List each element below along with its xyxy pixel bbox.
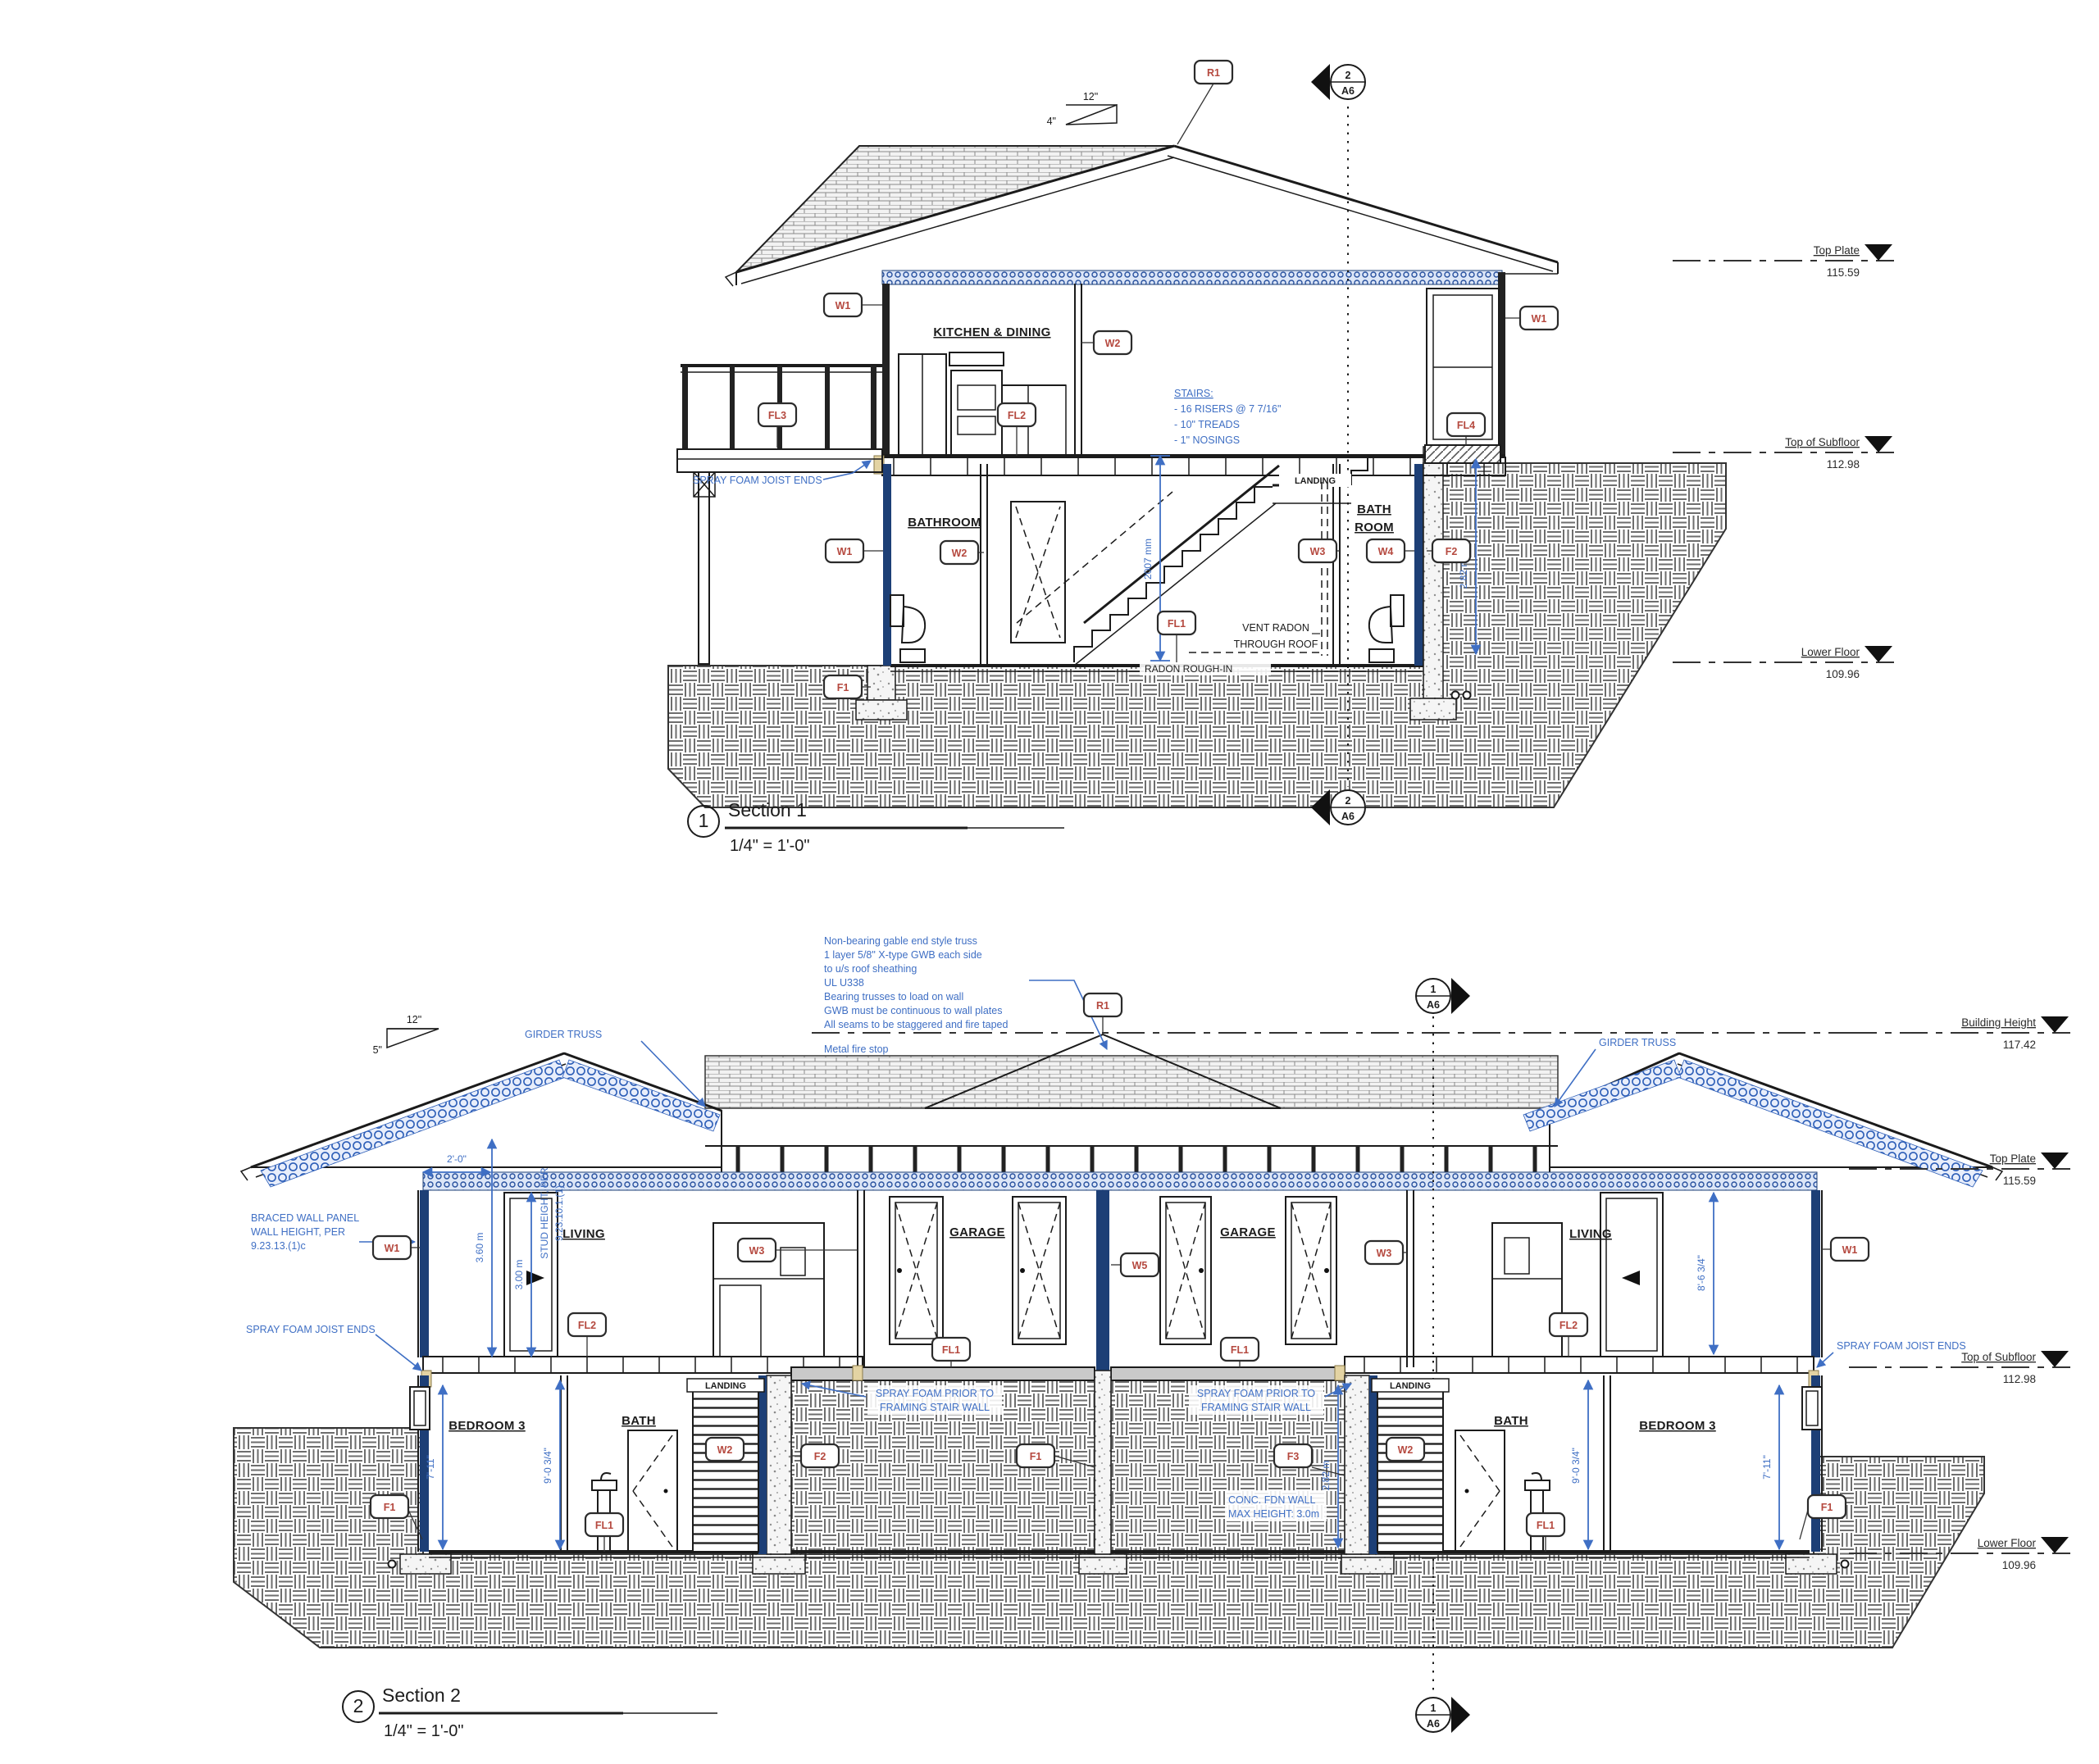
- svg-text:WALL HEIGHT, PER: WALL HEIGHT, PER: [251, 1226, 345, 1238]
- note-spray-foam-s1: SPRAY FOAM JOIST ENDS: [693, 461, 871, 486]
- section-marker-s1-top: 2 A6: [1311, 64, 1365, 100]
- tag-w3-s1: W3: [1299, 539, 1340, 562]
- tag-w3-left-s2: W3: [738, 1239, 858, 1262]
- tag-w2-right-s2: W2: [1386, 1438, 1424, 1461]
- svg-text:109.96: 109.96: [2002, 1559, 2036, 1571]
- room-label-landing-s1: LANDING: [1295, 476, 1336, 486]
- room-label-bathroom-s1: BATHROOM: [908, 516, 981, 530]
- svg-text:CONC. FDN WALL: CONC. FDN WALL: [1228, 1494, 1316, 1506]
- room-label-bedroom3-right: BEDROOM 3: [1639, 1419, 1716, 1433]
- svg-text:8'-6 3/4": 8'-6 3/4": [1696, 1255, 1707, 1291]
- note-spray-foam-right-s2: SPRAY FOAM JOIST ENDS: [1817, 1340, 1966, 1367]
- svg-text:W2: W2: [1398, 1444, 1414, 1456]
- tag-w5-s2: W5: [1111, 1253, 1159, 1276]
- svg-text:W5: W5: [1132, 1260, 1148, 1271]
- svg-text:Lower Floor: Lower Floor: [1978, 1537, 2037, 1549]
- svg-text:4": 4": [1047, 116, 1056, 127]
- svg-text:F1: F1: [1821, 1502, 1833, 1513]
- svg-text:FRAMING STAIR WALL: FRAMING STAIR WALL: [880, 1402, 990, 1413]
- note-gable-truss-s2: Non-bearing gable end style truss 1 laye…: [824, 935, 1107, 1055]
- svg-text:2.82 m: 2.82 m: [1458, 559, 1469, 589]
- level-building-height-s2: Building Height 117.42: [1849, 1016, 2070, 1051]
- svg-text:A6: A6: [1427, 999, 1440, 1011]
- toilet-left-s1: [890, 595, 925, 662]
- svg-text:STUD HEIGHT, PER: STUD HEIGHT, PER: [539, 1167, 550, 1259]
- svg-text:2: 2: [1345, 70, 1351, 81]
- tag-w1-upper-right-s1: W1: [1505, 307, 1558, 330]
- svg-text:FL2: FL2: [578, 1320, 596, 1331]
- svg-text:SPRAY FOAM PRIOR TO: SPRAY FOAM PRIOR TO: [1197, 1388, 1316, 1399]
- dim-overhang-s2: 2'-0": [423, 1153, 490, 1172]
- svg-text:FL1: FL1: [942, 1344, 960, 1356]
- svg-text:W3: W3: [1310, 546, 1326, 557]
- tag-fl4-s1: FL4: [1447, 413, 1485, 445]
- level-top-subfloor-s2: Top of Subfloor 112.98: [1849, 1351, 2070, 1385]
- stairs-right-s2: LANDING: [1372, 1379, 1449, 1552]
- room-label-bath-left: BATH: [622, 1414, 656, 1428]
- tag-fl3-s1: FL3: [758, 403, 796, 448]
- note-vent-radon-2: THROUGH ROOF: [1234, 639, 1318, 650]
- level-lower-floor-s1: Lower Floor 109.96: [1673, 646, 1894, 680]
- svg-text:7'-11": 7'-11": [425, 1455, 436, 1480]
- svg-text:9'-0 3/4": 9'-0 3/4": [542, 1448, 553, 1484]
- svg-text:to u/s roof sheathing: to u/s roof sheathing: [824, 963, 917, 975]
- svg-text:12": 12": [1083, 91, 1098, 102]
- stairs-left-s2: LANDING: [687, 1379, 764, 1552]
- garage-door-right-1: [1160, 1197, 1211, 1344]
- svg-text:BRACED WALL PANEL: BRACED WALL PANEL: [251, 1212, 359, 1224]
- garage-door-left-1: [890, 1197, 943, 1344]
- svg-text:FL2: FL2: [1008, 410, 1026, 421]
- svg-text:- 16 RISERS @ 7 7/16": - 16 RISERS @ 7 7/16": [1174, 403, 1281, 415]
- svg-text:A6: A6: [1341, 811, 1355, 822]
- svg-text:Section 1: Section 1: [728, 799, 807, 821]
- tag-w1-upper-left-s1: W1: [824, 293, 882, 316]
- svg-text:FL1: FL1: [595, 1520, 613, 1531]
- svg-text:112.98: 112.98: [2003, 1373, 2036, 1385]
- svg-text:9.23.10.1.(1): 9.23.10.1.(1): [553, 1185, 565, 1241]
- svg-text:9'-0 3/4": 9'-0 3/4": [1570, 1448, 1582, 1484]
- tag-fl2-s1: FL2: [998, 403, 1036, 456]
- note-radon-roughin: RADON ROUGH-IN: [1145, 663, 1232, 675]
- svg-text:SPRAY FOAM PRIOR TO: SPRAY FOAM PRIOR TO: [876, 1388, 995, 1399]
- svg-text:All seams to be staggered and: All seams to be staggered and fire taped: [824, 1019, 1008, 1030]
- tag-f2-s1: F2: [1427, 539, 1470, 562]
- svg-text:GWB must be continuous to wall: GWB must be continuous to wall plates: [824, 1005, 1002, 1016]
- svg-text:1: 1: [1431, 1703, 1437, 1714]
- svg-text:FL4: FL4: [1457, 420, 1475, 431]
- svg-text:F2: F2: [1446, 546, 1458, 557]
- svg-text:5": 5": [373, 1044, 382, 1056]
- svg-text:FL1: FL1: [1168, 618, 1186, 630]
- room-label-bath-right: BATH: [1494, 1414, 1528, 1428]
- tag-w3-right-s2: W3: [1365, 1241, 1407, 1264]
- svg-text:1/4" = 1'-0": 1/4" = 1'-0": [730, 837, 810, 855]
- svg-text:SPRAY FOAM JOIST ENDS: SPRAY FOAM JOIST ENDS: [693, 475, 822, 486]
- svg-text:2.82 m: 2.82 m: [1320, 1461, 1332, 1491]
- tag-fl1-garage-left: FL1: [932, 1338, 970, 1367]
- section-marker-s2-bottom: 1 A6: [1416, 1697, 1470, 1733]
- svg-text:F3: F3: [1287, 1451, 1300, 1462]
- svg-text:Building Height: Building Height: [1961, 1016, 2036, 1029]
- tag-w4-s1: W4: [1367, 539, 1414, 562]
- note-stairs-s1: STAIRS: - 16 RISERS @ 7 7/16" - 10" TREA…: [1174, 388, 1281, 446]
- tag-fl1-s1: FL1: [1158, 611, 1195, 662]
- ceiling-insulation-s2: [423, 1172, 1817, 1190]
- svg-text:W2: W2: [717, 1444, 733, 1456]
- svg-text:FL1: FL1: [1231, 1344, 1249, 1356]
- svg-text:3.00 m: 3.00 m: [513, 1260, 525, 1290]
- room-label-bathroom2-line1: BATH: [1357, 502, 1391, 516]
- svg-text:A6: A6: [1427, 1718, 1440, 1730]
- svg-text:3.60 m: 3.60 m: [474, 1233, 485, 1263]
- tag-r1-s2: R1: [1084, 993, 1122, 1034]
- main-walls-s2: [418, 1190, 1822, 1371]
- svg-text:W3: W3: [749, 1245, 765, 1257]
- dim-903-right-s2: 9'-0 3/4": [1570, 1380, 1588, 1549]
- svg-text:115.59: 115.59: [1827, 266, 1860, 279]
- note-metal-fire-stop: Metal fire stop: [824, 1043, 889, 1055]
- room-label-landing-left-s2: LANDING: [705, 1381, 746, 1391]
- svg-text:F1: F1: [1030, 1451, 1042, 1462]
- svg-text:F1: F1: [837, 682, 849, 693]
- svg-text:W1: W1: [1842, 1244, 1858, 1256]
- tag-fl1-bath-right: FL1: [1527, 1513, 1564, 1552]
- tag-w1-right-s2: W1: [1822, 1238, 1869, 1261]
- garage-door-right-2: [1286, 1197, 1336, 1344]
- tag-fl2-left-s2: FL2: [568, 1313, 606, 1357]
- kitchen-right-s2: [1492, 1223, 1562, 1357]
- garage-door-left-2: [1013, 1197, 1066, 1344]
- svg-text:Non-bearing gable end style tr: Non-bearing gable end style truss: [824, 935, 977, 947]
- room-label-living-left: LIVING: [562, 1227, 605, 1241]
- svg-text:- 1" NOSINGS: - 1" NOSINGS: [1174, 434, 1240, 446]
- room-label-garage-right: GARAGE: [1220, 1225, 1276, 1239]
- room-label-garage-left: GARAGE: [949, 1225, 1005, 1239]
- tag-fl2-right-s2: FL2: [1550, 1313, 1587, 1357]
- svg-text:A6: A6: [1341, 85, 1355, 97]
- svg-text:F2: F2: [814, 1451, 826, 1462]
- note-conc-fdn-s2: CONC. FDN WALL MAX HEIGHT: 3.0m: [1225, 1490, 1327, 1521]
- tag-w1-left-s2: W1: [373, 1236, 420, 1259]
- svg-text:SPRAY FOAM JOIST ENDS: SPRAY FOAM JOIST ENDS: [1837, 1340, 1966, 1352]
- svg-text:SPRAY FOAM JOIST ENDS: SPRAY FOAM JOIST ENDS: [246, 1324, 376, 1335]
- svg-text:W3: W3: [1377, 1248, 1392, 1259]
- toilet-right-s1: [1369, 595, 1404, 662]
- section-1-drawing: 12" 4" 2 A6 2 A6: [668, 61, 1894, 855]
- bath-door-right-s2: [1455, 1430, 1505, 1552]
- svg-text:2'-0": 2'-0": [447, 1153, 467, 1165]
- level-top-plate-s1: Top Plate 115.59: [1673, 244, 1894, 279]
- svg-text:1: 1: [1431, 984, 1437, 995]
- svg-text:FL1: FL1: [1537, 1520, 1555, 1531]
- subfloor-band-s1: [874, 456, 1505, 475]
- section-marker-s2-top: 1 A6: [1416, 978, 1470, 1014]
- room-label-kitchen: KITCHEN & DINING: [933, 325, 1050, 339]
- slope-marker-s1: 12" 4": [1047, 91, 1117, 127]
- svg-text:1/4" = 1'-0": 1/4" = 1'-0": [384, 1722, 464, 1740]
- ceiling-insulation-s1: [882, 271, 1502, 284]
- svg-text:- 10" TREADS: - 10" TREADS: [1174, 419, 1240, 430]
- svg-text:R1: R1: [1096, 1000, 1109, 1012]
- room-label-bedroom3-left: BEDROOM 3: [448, 1419, 526, 1433]
- svg-text:Top Plate: Top Plate: [1814, 244, 1860, 257]
- svg-text:112.98: 112.98: [1827, 458, 1860, 471]
- section-2-title: 2 Section 2 1/4" = 1'-0": [343, 1684, 717, 1740]
- room-label-living-right: LIVING: [1569, 1227, 1612, 1241]
- roof-s2: [241, 1034, 2002, 1187]
- roof-s1: [726, 146, 1558, 286]
- svg-text:115.59: 115.59: [2003, 1175, 2036, 1187]
- svg-text:FL3: FL3: [768, 410, 786, 421]
- svg-text:9.23.13.(1)c: 9.23.13.(1)c: [251, 1240, 306, 1252]
- svg-text:W1: W1: [837, 546, 853, 557]
- svg-text:W1: W1: [1532, 313, 1547, 325]
- radon-vent-s1: VENT RADON THROUGH ROOF RADON ROUGH-IN: [1140, 482, 1327, 675]
- tag-fl1-bath-left: FL1: [585, 1513, 623, 1552]
- svg-text:1 layer 5/8" X-type GWB each s: 1 layer 5/8" X-type GWB each side: [824, 949, 982, 961]
- svg-text:W2: W2: [1105, 338, 1121, 349]
- svg-text:2: 2: [353, 1695, 364, 1716]
- svg-text:2: 2: [1345, 795, 1351, 807]
- svg-text:Top of Subfloor: Top of Subfloor: [1961, 1351, 2036, 1363]
- svg-text:Top of Subfloor: Top of Subfloor: [1785, 436, 1860, 448]
- drawing-sheet: 12" 4" 2 A6 2 A6: [0, 0, 2099, 1764]
- svg-text:UL U338: UL U338: [824, 977, 864, 989]
- svg-text:FRAMING STAIR WALL: FRAMING STAIR WALL: [1201, 1402, 1311, 1413]
- bath-door-left-s2: [628, 1430, 677, 1552]
- room-label-bathroom2-line2: ROOM: [1355, 521, 1394, 534]
- svg-text:Lower Floor: Lower Floor: [1801, 646, 1860, 658]
- svg-text:W4: W4: [1378, 546, 1394, 557]
- tag-w2-left-s2: W2: [706, 1438, 744, 1461]
- svg-text:117.42: 117.42: [2003, 1039, 2036, 1051]
- svg-text:Bearing trusses to load on wal: Bearing trusses to load on wall: [824, 991, 963, 1002]
- svg-text:109.96: 109.96: [1826, 668, 1860, 680]
- porch-slab-s1: [1425, 445, 1500, 463]
- svg-text:2007 mm: 2007 mm: [1142, 539, 1154, 580]
- svg-text:12": 12": [407, 1014, 421, 1025]
- room-label-landing-right-s2: LANDING: [1390, 1381, 1431, 1391]
- tag-r1-s1: R1: [1177, 61, 1232, 144]
- svg-text:STAIRS:: STAIRS:: [1174, 388, 1213, 399]
- note-spray-foam-left-s2: SPRAY FOAM JOIST ENDS: [246, 1324, 421, 1371]
- svg-text:W1: W1: [836, 300, 851, 311]
- ground-hatch-s1: [668, 463, 1726, 807]
- svg-text:R1: R1: [1207, 67, 1220, 79]
- svg-text:MAX HEIGHT: 3.0m: MAX HEIGHT: 3.0m: [1228, 1508, 1319, 1520]
- svg-text:FL2: FL2: [1559, 1320, 1578, 1331]
- svg-text:1: 1: [699, 810, 709, 831]
- slope-marker-s2: 12" 5": [373, 1014, 439, 1056]
- svg-text:Top Plate: Top Plate: [1990, 1153, 2036, 1165]
- svg-text:GIRDER TRUSS: GIRDER TRUSS: [1599, 1037, 1676, 1048]
- note-vent-radon-1: VENT RADON: [1242, 622, 1309, 634]
- kitchen-cabinets-s1: [899, 352, 1066, 457]
- tag-w2-lower-s1: W2: [940, 541, 984, 564]
- dim-711-right-s2: 7'-11": [1761, 1385, 1779, 1549]
- svg-text:W1: W1: [385, 1243, 400, 1254]
- entry-door-right-s2: [1600, 1193, 1663, 1357]
- svg-text:W2: W2: [952, 548, 968, 559]
- svg-text:F1: F1: [384, 1502, 396, 1513]
- section-2-drawing: 12" 5" Non-bearing gable end style truss…: [234, 935, 2070, 1740]
- dim-863-right-s2: 8'-6 3/4": [1696, 1193, 1714, 1354]
- tag-fl1-garage-right: FL1: [1221, 1338, 1259, 1367]
- svg-text:Section 2: Section 2: [382, 1684, 461, 1706]
- dim-903-left-s2: 9'-0 3/4": [542, 1380, 560, 1549]
- sections-drawing: 12" 4" 2 A6 2 A6: [0, 0, 2099, 1764]
- svg-text:GIRDER TRUSS: GIRDER TRUSS: [525, 1029, 602, 1040]
- tag-w2-upper-s1: W2: [1081, 331, 1131, 354]
- tag-w1-lower-left-s1: W1: [826, 539, 883, 562]
- svg-text:7'-11": 7'-11": [1761, 1455, 1773, 1480]
